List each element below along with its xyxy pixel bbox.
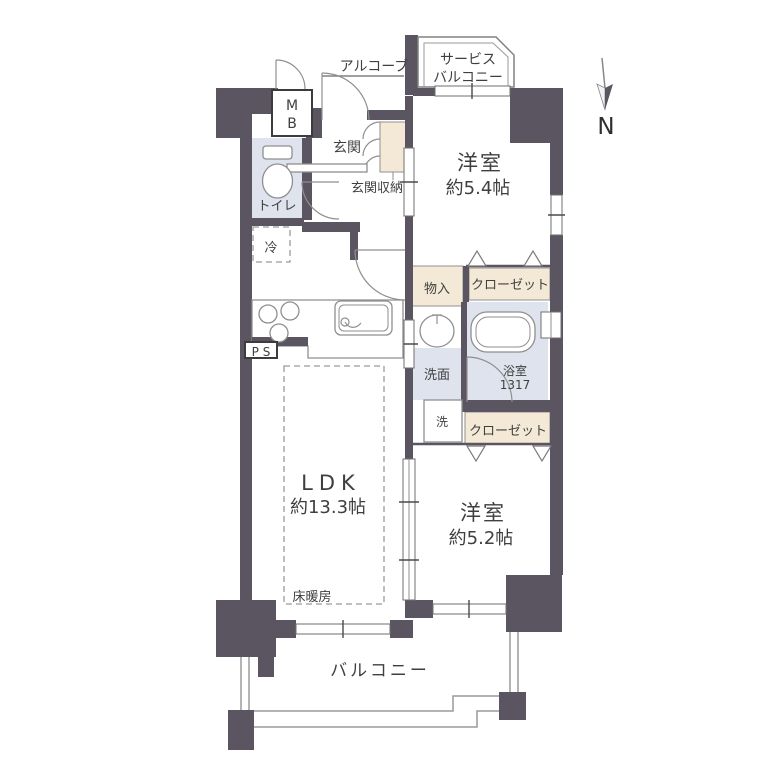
wall-bath-divider bbox=[461, 302, 467, 400]
entrance-step bbox=[287, 164, 367, 172]
wall-segment bbox=[350, 232, 358, 260]
storage-label: 物入 bbox=[424, 282, 450, 297]
ldk-size-label: 約13.3帖 bbox=[290, 497, 366, 518]
wall-segment bbox=[405, 96, 413, 148]
wall-toilet-right bbox=[302, 138, 312, 220]
closet-upper-label: クローゼット bbox=[471, 278, 549, 293]
wall-segment bbox=[405, 368, 413, 460]
toilet-label: トイレ bbox=[257, 199, 296, 214]
closet-lower-label: クローゼット bbox=[469, 424, 547, 439]
bathroom-size-label: 1317 bbox=[500, 378, 531, 392]
service-balcony-label-1: サービス bbox=[440, 52, 496, 68]
wall-segment bbox=[390, 620, 413, 638]
toilet-bowl-icon bbox=[263, 164, 293, 198]
toilet-tank-icon bbox=[263, 146, 292, 159]
wall-segment bbox=[258, 657, 274, 677]
stove-burner-icon bbox=[259, 305, 277, 323]
meter-box-label-2: B bbox=[287, 116, 297, 132]
wall-segment bbox=[413, 88, 437, 96]
bedroom2-name-label: 洋室 bbox=[460, 501, 506, 525]
bedroom1-name-label: 洋室 bbox=[457, 151, 503, 175]
entrance-storage-label: 玄関収納 bbox=[351, 181, 403, 196]
ldk-name-label: LDK bbox=[301, 471, 361, 495]
floor-heating-label: 床暖房 bbox=[292, 589, 331, 605]
service-balcony-label-2: バルコニー bbox=[433, 70, 503, 86]
bedroom1-size-label: 約5.4帖 bbox=[446, 178, 511, 199]
entrance-label: 玄関 bbox=[333, 139, 361, 156]
stove-burner-icon bbox=[270, 324, 288, 342]
balcony-post-left bbox=[228, 710, 254, 750]
wall-segment bbox=[252, 620, 296, 638]
north-label: N bbox=[597, 114, 614, 140]
meter-box-label-1: M bbox=[286, 98, 298, 114]
wall-pillar-bottom-right bbox=[506, 575, 562, 632]
pipe-space-label: P S bbox=[252, 345, 271, 359]
wall-segment bbox=[302, 222, 360, 232]
balcony-post-right bbox=[499, 692, 526, 720]
bathtub-icon bbox=[471, 312, 535, 352]
wall-segment bbox=[216, 88, 242, 138]
wall-closet-divider bbox=[463, 266, 469, 302]
wall-segment bbox=[240, 218, 304, 226]
wall-segment bbox=[405, 600, 433, 618]
wall-pillar-top-right bbox=[510, 88, 553, 143]
washer-label: 洗 bbox=[436, 415, 448, 429]
floor-plan-canvas: サービス バルコニー アルコーブ M B 玄関 玄関収納 トイレ 冷 P S 物… bbox=[0, 0, 780, 780]
stove-burner-icon bbox=[281, 302, 299, 320]
washroom-label: 洗面 bbox=[424, 368, 450, 383]
wall-segment bbox=[405, 216, 413, 268]
bathroom-name-label: 浴室 bbox=[503, 363, 527, 378]
floor-plan-drawing: サービス バルコニー アルコーブ M B 玄関 玄関収納 トイレ 冷 P S 物… bbox=[0, 0, 780, 780]
balcony-label: バルコニー bbox=[330, 661, 430, 681]
bedroom2-size-label: 約5.2帖 bbox=[449, 528, 514, 549]
wall-segment bbox=[405, 268, 413, 322]
wall-segment bbox=[462, 400, 553, 412]
refrigerator-label: 冷 bbox=[264, 241, 277, 256]
alcove-label: アルコーブ bbox=[340, 58, 409, 75]
